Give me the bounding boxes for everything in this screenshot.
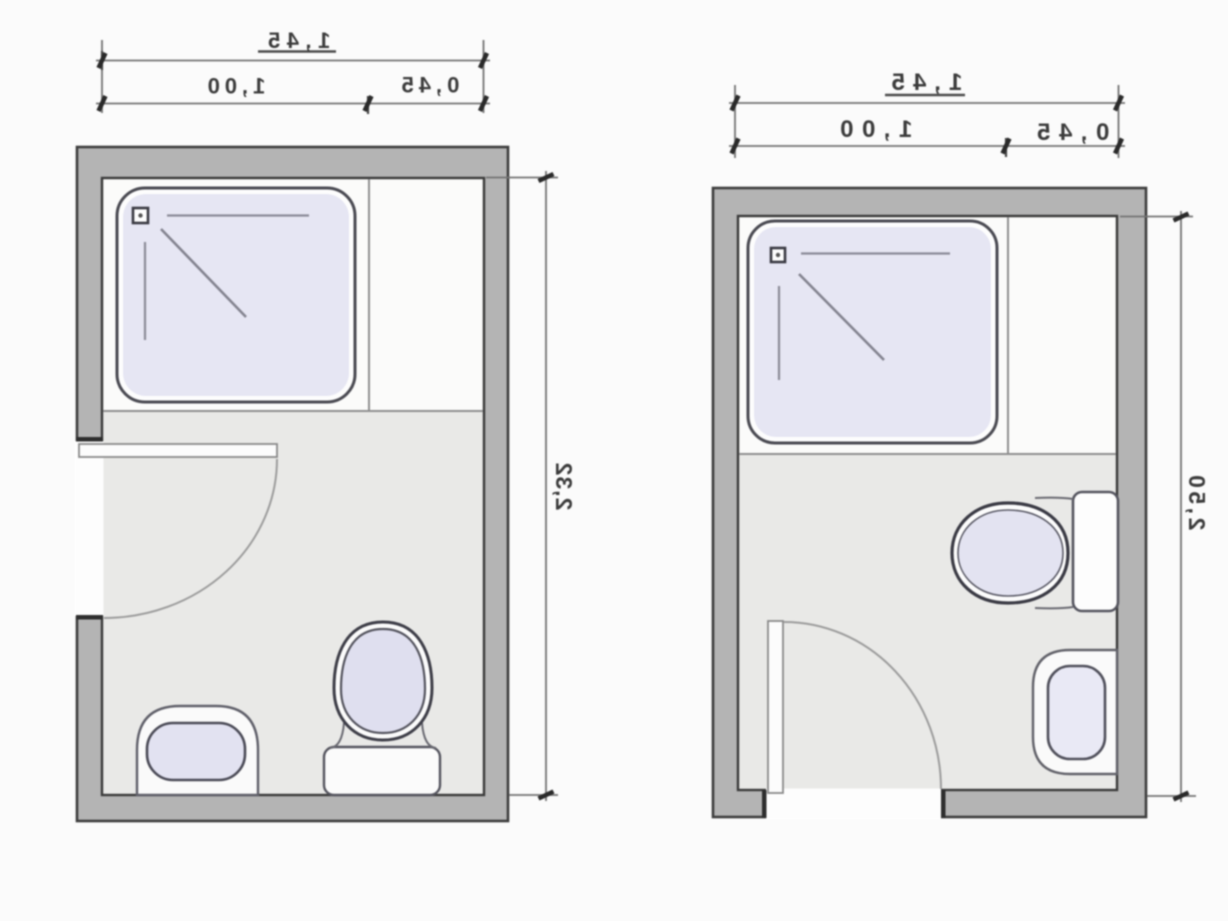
svg-text:2,50: 2,50 bbox=[1184, 472, 1210, 531]
svg-text:1,00: 1,00 bbox=[203, 74, 266, 99]
svg-text:2,32: 2,32 bbox=[551, 462, 577, 511]
svg-text:0,45: 0,45 bbox=[1029, 119, 1110, 146]
svg-text:1,45: 1,45 bbox=[884, 69, 963, 96]
svg-text:1,45: 1,45 bbox=[262, 28, 331, 53]
svg-text:1,00: 1,00 bbox=[832, 116, 913, 143]
svg-text:0,45: 0,45 bbox=[397, 73, 460, 98]
